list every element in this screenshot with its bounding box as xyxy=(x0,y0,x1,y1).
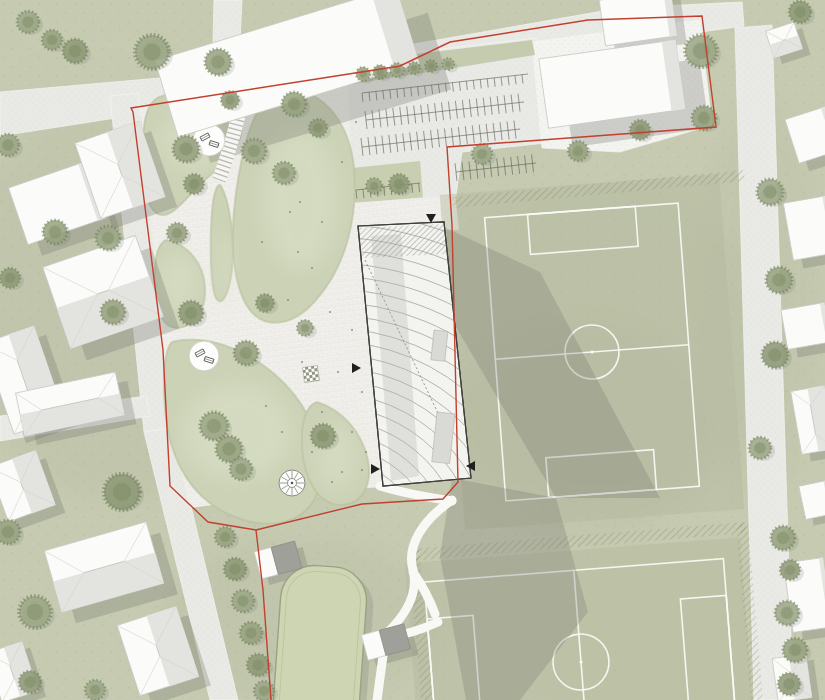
tree-core xyxy=(769,349,782,362)
plaza-dot xyxy=(341,471,343,473)
plaza-dot xyxy=(261,241,263,243)
carousel xyxy=(279,470,305,496)
plaza-dot xyxy=(331,481,333,483)
plaza-dot xyxy=(355,121,357,123)
hall-inner-block xyxy=(431,330,448,361)
tree-core xyxy=(314,124,323,133)
house-m xyxy=(781,302,825,349)
tree-core xyxy=(755,443,766,454)
plaza-dot xyxy=(301,361,303,363)
checker-cells xyxy=(303,366,320,383)
tree-core xyxy=(698,112,710,124)
plaza-dot xyxy=(299,201,301,203)
green-patch xyxy=(352,161,423,203)
tree-core xyxy=(172,228,182,238)
lawn-highlight xyxy=(262,130,338,270)
plaza-dot xyxy=(287,299,289,301)
tree-core xyxy=(3,140,14,151)
tree-core xyxy=(226,96,235,105)
tree-core xyxy=(445,61,451,67)
tree-core xyxy=(180,143,193,156)
tree-core xyxy=(107,306,119,318)
tree-core xyxy=(189,179,199,189)
plaza-dot xyxy=(311,451,313,453)
plaza-dot xyxy=(341,161,343,163)
tree-core xyxy=(230,564,241,575)
plaza-dot xyxy=(329,311,331,313)
tree-core xyxy=(789,644,801,656)
house-m-body xyxy=(781,302,825,349)
tree-core xyxy=(220,532,230,542)
plaza-dot xyxy=(289,211,291,213)
tree-core xyxy=(248,145,260,157)
plaza-dot xyxy=(297,251,299,253)
tree-core xyxy=(785,565,795,575)
tree-core xyxy=(144,44,161,61)
tree-core xyxy=(27,604,43,620)
picnic-area xyxy=(189,341,219,371)
tree-core xyxy=(185,307,197,319)
tree-core xyxy=(428,63,434,69)
plaza-dot xyxy=(321,411,323,413)
tree-core xyxy=(238,596,249,607)
tree-core xyxy=(411,65,417,71)
tree-core xyxy=(317,430,329,442)
tree-core xyxy=(261,299,270,308)
tree-core xyxy=(773,274,786,287)
lawn-highlight xyxy=(216,230,232,306)
plaza-dot xyxy=(351,431,353,433)
tree-core xyxy=(69,45,81,57)
tree-core xyxy=(236,464,247,475)
tree-core xyxy=(279,168,290,179)
tree-core xyxy=(113,483,131,501)
tree-core xyxy=(223,443,236,456)
tree-core xyxy=(23,17,34,28)
tree-core xyxy=(25,677,36,688)
tree-core xyxy=(764,186,777,199)
tree-core xyxy=(246,628,257,639)
tree-core xyxy=(102,232,114,244)
tree-core xyxy=(253,660,264,671)
tree-core xyxy=(212,56,225,69)
tree-core xyxy=(781,607,793,619)
tree-core xyxy=(573,146,583,156)
plaza-dot xyxy=(281,431,283,433)
tree-core xyxy=(477,149,487,159)
plaza-dot xyxy=(361,391,363,393)
site-plan-stage xyxy=(0,0,825,700)
roof-hatch-band xyxy=(359,224,447,258)
tree-core xyxy=(777,532,789,544)
tree-core xyxy=(47,35,57,45)
play-checker-square xyxy=(303,366,320,383)
site-plan xyxy=(0,0,825,700)
plaza-dot xyxy=(351,329,353,331)
tree-core xyxy=(90,685,100,695)
tree-core xyxy=(259,686,269,696)
tree-core xyxy=(394,179,404,189)
tree-core xyxy=(784,679,795,690)
tree-core xyxy=(2,526,14,538)
tree-core xyxy=(240,347,252,359)
tree-core xyxy=(370,182,378,190)
picnic-circle xyxy=(189,341,219,371)
carousel-center xyxy=(291,482,294,485)
practice-oval xyxy=(271,563,376,700)
tree-core xyxy=(288,98,300,110)
tree-core xyxy=(5,273,15,283)
plaza-dot xyxy=(265,405,267,407)
tree-core xyxy=(301,324,309,332)
tree-core xyxy=(795,7,806,18)
plaza-dot xyxy=(361,469,363,471)
plaza-dot xyxy=(365,451,367,453)
tree-core xyxy=(207,419,221,433)
plaza-dot xyxy=(311,267,313,269)
plaza-dot xyxy=(321,221,323,223)
plaza-dot xyxy=(337,371,339,373)
tree-core xyxy=(49,226,61,238)
